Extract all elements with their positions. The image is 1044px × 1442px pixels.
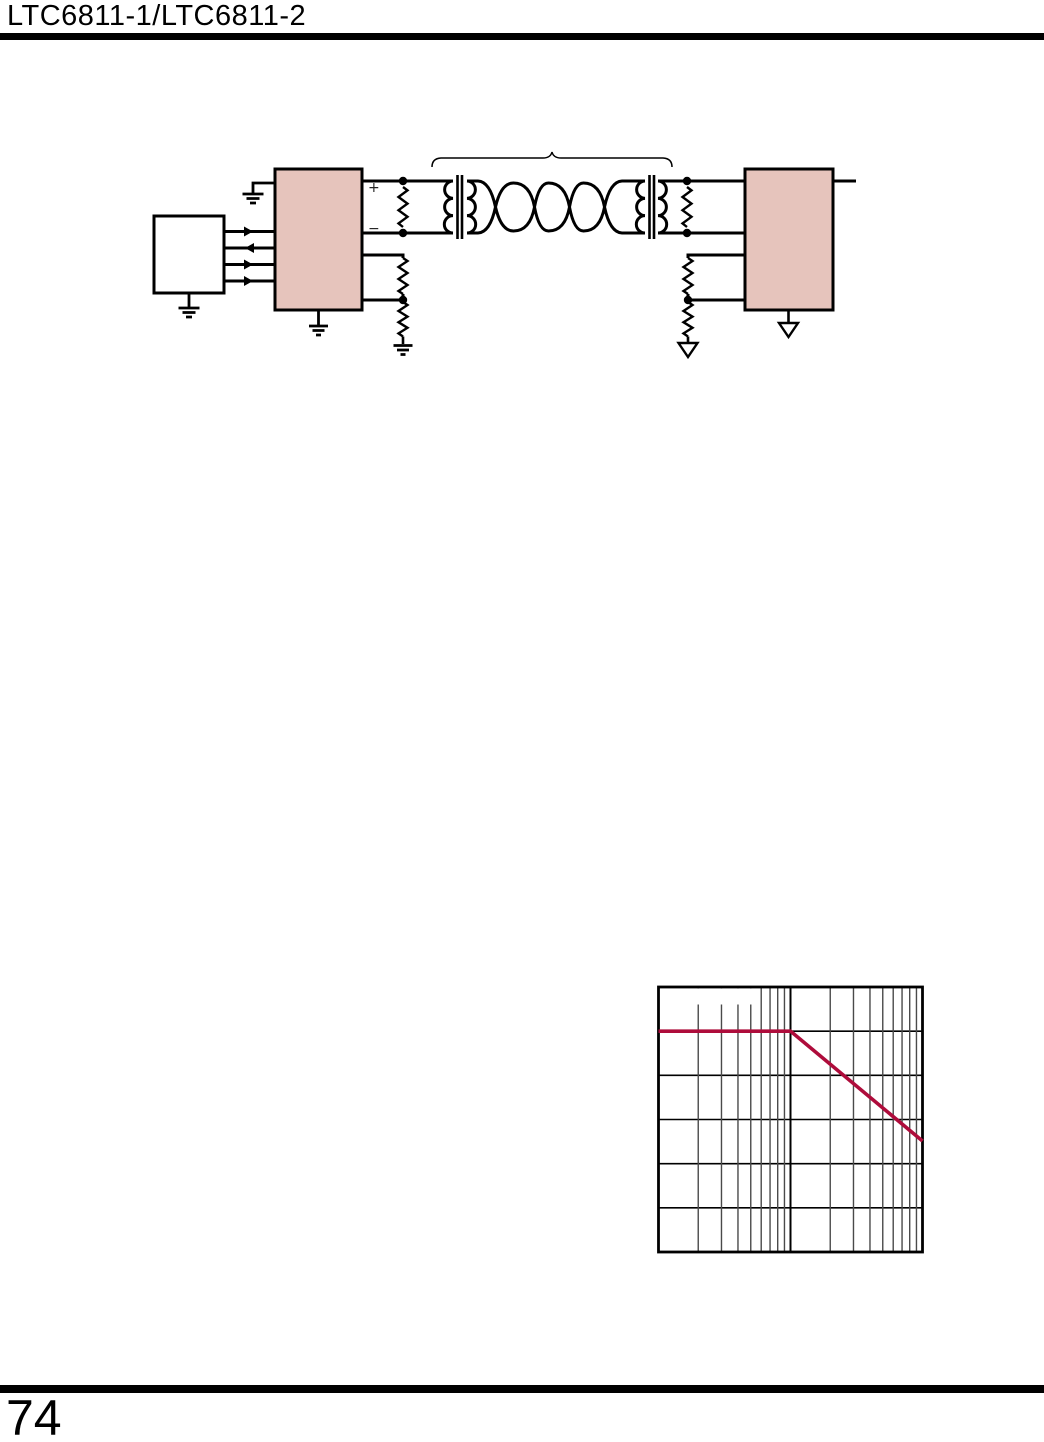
transformer-right (636, 175, 666, 239)
spi-bus (224, 227, 275, 287)
footer-rule (0, 1385, 1044, 1393)
arrow-right-icon (244, 227, 253, 237)
junction-dot (399, 229, 407, 237)
chart-gridlines (659, 987, 923, 1252)
core-bars-icon (458, 175, 463, 239)
monitor-ground-triangle (779, 310, 798, 337)
cable-brace (432, 152, 672, 167)
divider-ground-triangle-right (679, 343, 698, 357)
isospi-pair-wires-right (658, 181, 745, 233)
arrow-right-icon (244, 276, 253, 286)
junction-dot (683, 177, 691, 185)
junction-dot (399, 177, 407, 185)
winding-icon (658, 181, 667, 233)
winding-icon (444, 181, 453, 233)
winding-icon (636, 181, 645, 233)
core-bars-icon (650, 175, 655, 239)
junction-dot (683, 229, 691, 237)
bias-divider-right (684, 255, 746, 343)
battery-monitor-block (745, 169, 833, 310)
page-title: LTC6811-1/LTC6811-2 (7, 0, 306, 33)
arrow-right-icon (244, 260, 253, 270)
twisted-pair-cable (467, 181, 645, 233)
spi-signal-line (224, 227, 275, 237)
header-rule (0, 33, 1044, 40)
termination-resistor-left (399, 187, 408, 227)
isospi-driver-block (275, 169, 362, 310)
mcu-block (154, 216, 224, 293)
datasheet-page: LTC6811-1/LTC6811-2 (0, 0, 1044, 1442)
spi-signal-line (224, 243, 275, 253)
transformer-left (444, 175, 475, 239)
arrow-left-icon (245, 243, 254, 253)
mcu-ground-symbol (179, 293, 200, 317)
erased-title-area (661, 989, 757, 1005)
page-number: 74 (6, 1389, 62, 1442)
isospi-circuit-diagram: + − (140, 145, 870, 370)
minus-label: − (368, 221, 380, 237)
winding-icon (467, 181, 476, 233)
frequency-response-chart (656, 984, 928, 1256)
driver-bottom-ground-symbol (309, 310, 328, 335)
junction-dot (399, 296, 407, 304)
driver-supply-ground-symbol (243, 183, 276, 203)
spi-signal-line (224, 260, 275, 270)
spi-signal-line (224, 276, 275, 286)
termination-resistor-right (683, 187, 692, 227)
junction-dot (684, 296, 692, 304)
divider-ground-symbol-left (394, 346, 413, 355)
